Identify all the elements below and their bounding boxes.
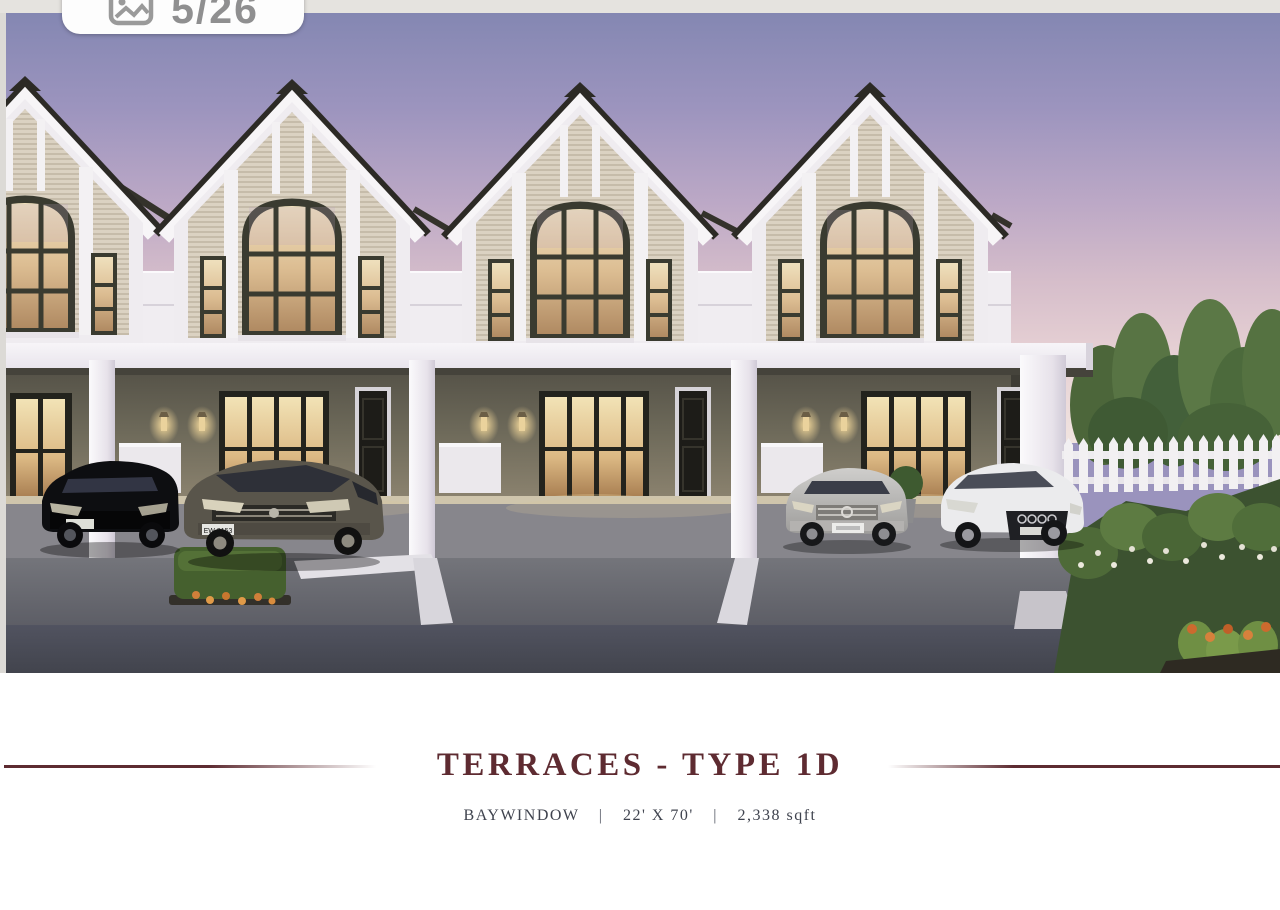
garden-beds (1054, 479, 1280, 673)
left-margin-strip (0, 13, 6, 673)
car-white-coupe (940, 463, 1084, 552)
photo-counter-text: 5/26 (171, 0, 259, 30)
spec-separator: | (713, 807, 718, 824)
unit-type-title: TERRACES - TYPE 1D (0, 747, 1280, 784)
house-rendering-illustration: EW 2153 (6, 13, 1280, 673)
photos-icon (107, 0, 155, 30)
porch-roof-band (6, 343, 1093, 377)
listing-photo[interactable]: EW 2153 (6, 13, 1280, 673)
caption-panel: TERRACES - TYPE 1D BAYWINDOW | 22' X 70'… (0, 673, 1280, 910)
spec-area: 2,338 sqft (737, 807, 816, 824)
gallery-screen: EW 2153 (0, 0, 1280, 910)
spec-separator: | (599, 807, 604, 824)
photo-counter-badge: 5/26 (62, 0, 304, 34)
unit-specs: BAYWINDOW | 22' X 70' | 2,338 sqft (0, 807, 1280, 825)
spec-feature: BAYWINDOW (464, 807, 580, 824)
spec-dimensions: 22' X 70' (623, 807, 694, 824)
